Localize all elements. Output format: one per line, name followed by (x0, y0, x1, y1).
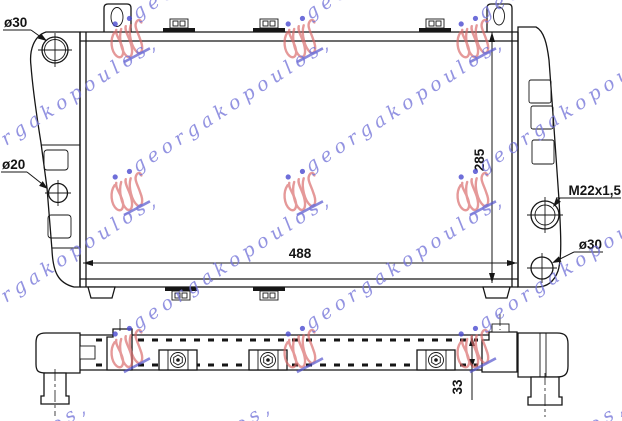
right-bracket (482, 314, 517, 372)
top-mount-tab-left (104, 4, 131, 32)
nut-clip-1 (159, 350, 197, 370)
bottom-foot-right (483, 287, 510, 298)
height-dimension-label: 285 (472, 148, 487, 171)
depth-dimension-label: 33 (450, 379, 465, 395)
dimension-height-285: 285 (472, 32, 495, 283)
bottom-clip-2 (253, 287, 285, 300)
left-hole-diameter-label: ø20 (2, 157, 25, 172)
top-clip-3 (419, 19, 451, 32)
elbow-step-tab (80, 346, 95, 359)
left-hose-elbow (36, 333, 95, 416)
right-tank (518, 27, 561, 287)
dimension-width-488: 488 (83, 246, 517, 266)
nut-clip-3 (417, 350, 455, 370)
right-hose-elbow (518, 333, 568, 417)
label-inlet-diameter: ø30 (3, 15, 47, 41)
label-thread-port: M22x1,5 (553, 183, 621, 207)
left-bracket (107, 319, 132, 370)
radiator-technical-drawing: 488 285 ø30 ø20 (0, 0, 622, 421)
top-mount-tab-right (487, 4, 512, 32)
nut-clip-2 (249, 350, 287, 370)
inlet-diameter-label: ø30 (4, 15, 27, 30)
bottom-clip-1 (165, 287, 197, 300)
drawing-canvas: 488 285 ø30 ø20 (0, 0, 622, 421)
outlet-diameter-label: ø30 (579, 237, 602, 252)
left-tank (31, 32, 80, 287)
bottom-foot-left (88, 287, 115, 298)
top-clip-1 (163, 19, 195, 32)
label-left-hole-diameter: ø20 (1, 157, 48, 189)
bottom-view: 33 (36, 314, 568, 417)
width-dimension-label: 488 (289, 246, 312, 261)
top-clip-2 (253, 19, 285, 32)
front-view: 488 285 ø30 ø20 (1, 4, 621, 300)
thread-port-label: M22x1,5 (568, 183, 621, 198)
